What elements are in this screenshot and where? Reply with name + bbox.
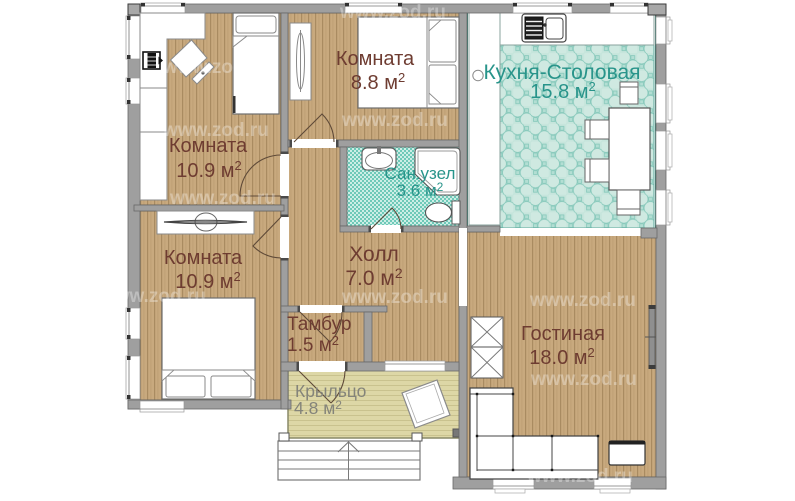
svg-text:4.8 м2: 4.8 м2 — [294, 398, 342, 418]
svg-text:Тамбур: Тамбур — [287, 314, 352, 335]
svg-text:Холл: Холл — [349, 243, 399, 266]
svg-text:www.zod.ru: www.zod.ru — [162, 57, 269, 78]
svg-text:www.zod.ru: www.zod.ru — [529, 290, 636, 311]
svg-text:18.0 м2: 18.0 м2 — [529, 345, 594, 369]
svg-text:www.zod.ru: www.zod.ru — [526, 466, 633, 487]
svg-text:Комната: Комната — [336, 48, 415, 70]
svg-text:www.zod.ru: www.zod.ru — [341, 110, 448, 131]
svg-text:1.5 м2: 1.5 м2 — [287, 333, 339, 356]
svg-text:15.8 м2: 15.8 м2 — [530, 79, 595, 103]
svg-text:10.9 м2: 10.9 м2 — [175, 269, 240, 293]
svg-text:3.6 м2: 3.6 м2 — [397, 180, 444, 200]
svg-text:www.zod.ru: www.zod.ru — [530, 369, 637, 390]
svg-text:Комната: Комната — [164, 247, 243, 269]
svg-text:www.zod.ru: www.zod.ru — [339, 2, 446, 23]
svg-text:7.0 м2: 7.0 м2 — [345, 265, 402, 290]
svg-text:Комната: Комната — [169, 135, 248, 157]
svg-text:10.9 м2: 10.9 м2 — [176, 158, 241, 182]
svg-text:8.8 м2: 8.8 м2 — [351, 70, 405, 94]
svg-text:www.zod.ru: www.zod.ru — [169, 188, 276, 209]
svg-text:Гостиная: Гостиная — [521, 323, 605, 345]
svg-text:www.zod.ru: www.zod.ru — [341, 287, 448, 308]
